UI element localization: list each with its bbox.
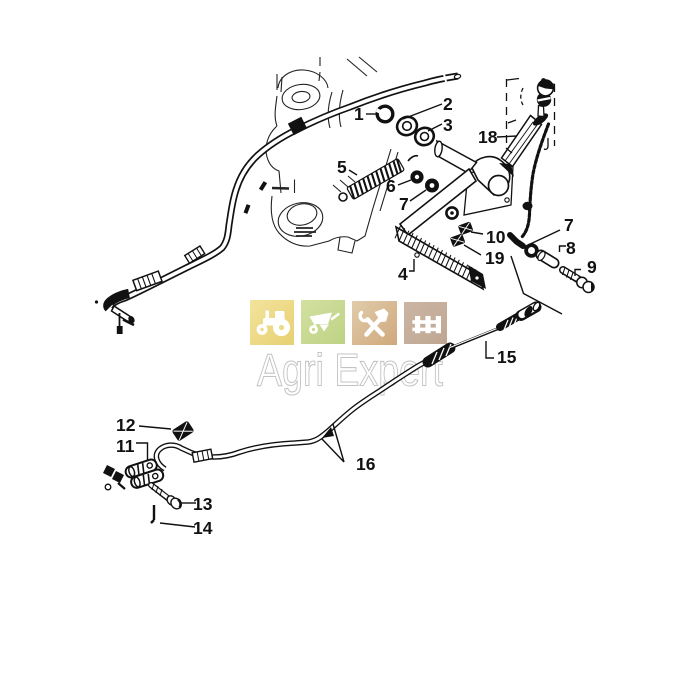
svg-text:12: 12 — [116, 415, 136, 435]
svg-text:18: 18 — [478, 127, 498, 147]
svg-text:7: 7 — [564, 215, 574, 235]
svg-text:5: 5 — [337, 157, 347, 177]
svg-text:16: 16 — [356, 454, 376, 474]
svg-text:19: 19 — [485, 248, 505, 268]
svg-text:14: 14 — [193, 518, 213, 538]
svg-text:2: 2 — [443, 94, 453, 114]
svg-text:8: 8 — [566, 238, 576, 258]
svg-text:1: 1 — [354, 104, 364, 124]
svg-text:9: 9 — [587, 257, 597, 277]
svg-text:7: 7 — [399, 194, 409, 214]
svg-text:3: 3 — [443, 115, 453, 135]
svg-text:6: 6 — [386, 176, 396, 196]
svg-text:10: 10 — [486, 227, 506, 247]
svg-text:4: 4 — [398, 264, 408, 284]
svg-text:15: 15 — [497, 347, 517, 367]
svg-text:13: 13 — [193, 494, 213, 514]
svg-text:11: 11 — [116, 436, 135, 456]
